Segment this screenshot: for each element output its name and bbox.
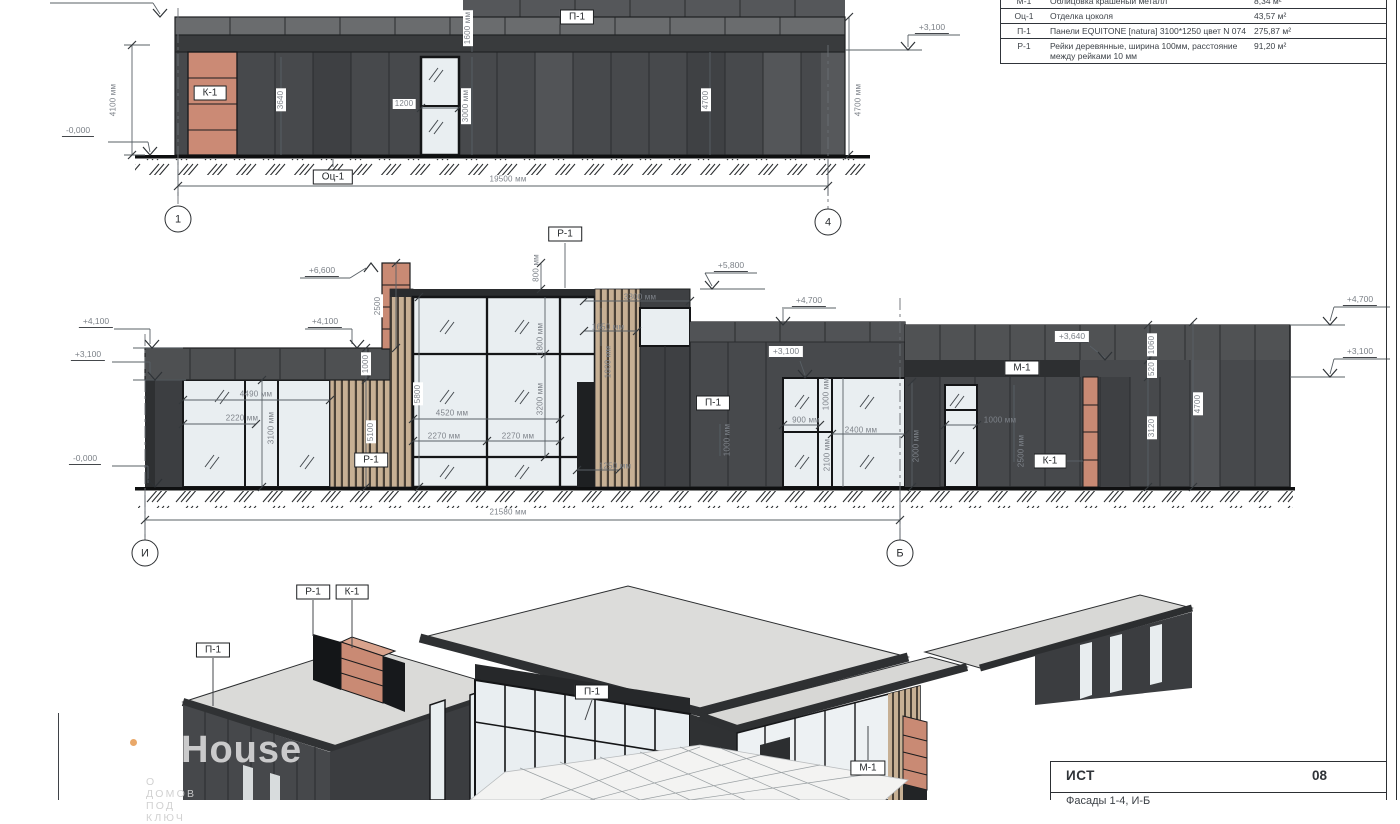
- watermark-dot-icon: [130, 739, 137, 746]
- material-tag: М-1: [850, 761, 885, 776]
- annotations-elevation-mid: Р-1Р-1П-1М-1К-1+6,600+4,100+3,100-0,000+…: [0, 0, 1400, 800]
- dim-label: 4700 мм: [854, 84, 863, 116]
- material-code: М-1: [1001, 0, 1047, 8]
- material-desc: Облицовка крашеный металл: [1047, 0, 1251, 8]
- house-3d-view: [100, 575, 1200, 800]
- sheet-number: 08: [1312, 768, 1327, 783]
- dim-label: 2100 мм: [823, 439, 832, 471]
- grid-marker: 1: [165, 206, 192, 233]
- material-tag: Р-1: [354, 453, 388, 468]
- watermark-tagline: О ДОМОВ ПОД КЛЮЧ: [146, 776, 196, 824]
- material-row: Р-1Рейки деревянные, ширина 100мм, расст…: [1001, 39, 1387, 64]
- dim-label: 1060: [1147, 334, 1157, 357]
- titleblock-mid-line: [1050, 792, 1386, 793]
- material-area: 43,57 м²: [1251, 9, 1377, 23]
- elevation-i-b-drawing: [0, 230, 1400, 575]
- dim-label: 1250 мм: [599, 462, 631, 471]
- material-tag: К-1: [194, 86, 227, 101]
- materials-table: М-1Облицовка крашеный металл8,34 м²Оц-1О…: [1000, 0, 1387, 64]
- level-label: -0,000: [69, 453, 101, 465]
- dim-label: 1000 мм: [984, 416, 1016, 425]
- dim-label: 2000 мм: [912, 430, 921, 462]
- material-tag: Р-1: [296, 585, 330, 600]
- stamp-left-line: [58, 713, 59, 800]
- dim-label: 800 мм: [532, 254, 541, 282]
- elevation-1-4-drawing: [0, 0, 1000, 230]
- titleblock-left-line: [1050, 761, 1051, 800]
- dim-label: 1000 мм: [604, 346, 613, 378]
- dim-label: 4700: [1193, 393, 1203, 416]
- dim-label: 3000 мм: [461, 88, 471, 124]
- level-label: +3,100: [769, 346, 803, 358]
- dim-label: 1800 мм: [536, 323, 545, 355]
- level-label: +5,800: [714, 260, 748, 272]
- sheet: { "materials_table": { "rows": [ {"code"…: [0, 0, 1400, 800]
- dim-label: 3100 мм: [267, 412, 276, 444]
- level-label: -0,000: [62, 125, 94, 137]
- dim-label: 520: [1147, 360, 1157, 378]
- material-code: Р-1: [1001, 39, 1047, 53]
- material-tag: П-1: [575, 685, 609, 700]
- level-label: +3,640: [1055, 331, 1089, 343]
- dim-label: 1000 мм: [822, 378, 831, 410]
- material-area: 8,34 м²: [1251, 0, 1377, 8]
- material-desc: Рейки деревянные, ширина 100мм, расстоян…: [1047, 39, 1251, 63]
- titleblock-top-line: [1050, 761, 1386, 762]
- level-label: +4,100: [308, 316, 342, 328]
- material-tag: Оц-1: [313, 170, 353, 185]
- dim-label: 2220 мм: [226, 414, 258, 423]
- material-row: М-1Облицовка крашеный металл8,34 м²: [1001, 0, 1387, 9]
- dim-label: 2500: [373, 295, 383, 318]
- sheet-border-outer: [1396, 0, 1397, 800]
- dim-label: 4520 мм: [436, 409, 468, 418]
- level-label: +3,100: [915, 22, 949, 34]
- titleblock-bottom-row: Фасады 1-4, И-Б: [1066, 795, 1150, 807]
- dim-label: 1650 мм: [592, 323, 624, 332]
- dim-label: 3200 мм: [536, 383, 545, 415]
- material-row: П-1Панели EQUITONE [natura] 3100*1250 цв…: [1001, 24, 1387, 39]
- dim-label: 3640: [276, 89, 286, 112]
- material-desc: Панели EQUITONE [natura] 3100*1250 цвет …: [1047, 24, 1251, 38]
- level-label: +4,700: [1343, 294, 1377, 306]
- dim-label: 900 мм: [792, 416, 820, 425]
- dim-label: 5800: [413, 383, 423, 406]
- grid-marker: И: [132, 540, 159, 567]
- level-label: +6,600: [305, 265, 339, 277]
- dim-label: 2500 мм: [1017, 435, 1026, 467]
- material-tag: Р-1: [548, 227, 582, 242]
- level-label: +4,700: [792, 295, 826, 307]
- level-label: +3,100: [1343, 346, 1377, 358]
- dim-label: 1000: [361, 353, 371, 376]
- material-row: Оц-1Отделка цоколя43,57 м²: [1001, 9, 1387, 24]
- material-code: П-1: [1001, 24, 1047, 38]
- dim-label: 4490 мм: [240, 390, 272, 399]
- dim-label: 21580 мм: [489, 508, 526, 517]
- level-label: +4,100: [79, 316, 113, 328]
- material-tag: К-1: [1034, 454, 1067, 469]
- annotations-view-3d: П-1Р-1К-1П-1М-1: [0, 0, 1400, 800]
- dim-label: 3300 мм: [624, 293, 656, 302]
- annotations-elevation-top: К-1П-1Оц-14100 мм364012003000 мм1600 мм4…: [0, 0, 1400, 800]
- dim-label: 2270 мм: [502, 432, 534, 441]
- material-tag: К-1: [336, 585, 369, 600]
- material-tag: М-1: [1004, 361, 1039, 376]
- material-code: Оц-1: [1001, 9, 1047, 23]
- material-area: 91,20 м²: [1251, 39, 1377, 53]
- project-code: ИСТ: [1066, 768, 1095, 783]
- dim-label: 4100 мм: [109, 84, 118, 116]
- dim-label: 3120: [1147, 417, 1157, 440]
- material-tag: П-1: [560, 10, 594, 25]
- dim-label: 1600 мм: [463, 10, 473, 46]
- dim-label: 5100: [366, 421, 376, 444]
- grid-marker: Б: [887, 540, 914, 567]
- dim-label: 19500 мм: [489, 175, 526, 184]
- dim-label: 1000 мм: [723, 424, 732, 456]
- material-area: 275,87 м²: [1251, 24, 1377, 38]
- dim-label: 4700: [701, 89, 711, 112]
- dim-label: 1200: [393, 99, 416, 109]
- level-label: +3,100: [71, 349, 105, 361]
- dim-label: 2270 мм: [428, 432, 460, 441]
- grid-marker: 4: [815, 209, 842, 236]
- dim-label: 2400 мм: [845, 426, 877, 435]
- watermark-brand: House: [181, 729, 302, 772]
- material-desc: Отделка цоколя: [1047, 9, 1251, 23]
- sheet-border-inner: [1386, 0, 1387, 800]
- material-tag: П-1: [196, 643, 230, 658]
- material-tag: П-1: [696, 396, 730, 411]
